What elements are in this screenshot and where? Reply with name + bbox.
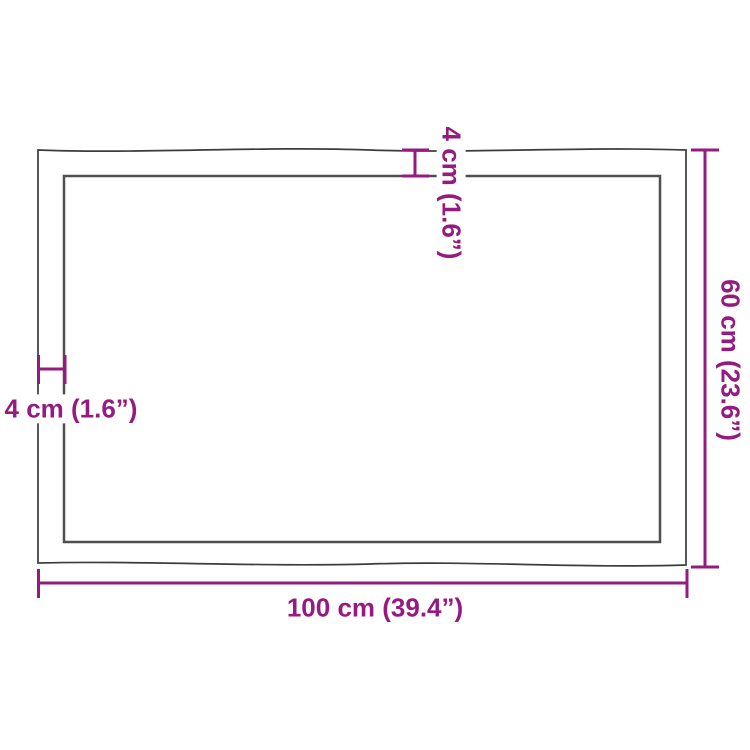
- top-thickness-label: 4 cm (1.6”): [436, 124, 465, 263]
- dimension-diagram: 4 cm (1.6”) 4 cm (1.6”) 60 cm (23.6”) 10…: [0, 0, 750, 750]
- length-dimension-label: 100 cm (39.4”): [284, 593, 466, 622]
- tabletop-drawing: [0, 0, 750, 750]
- left-thickness-label: 4 cm (1.6”): [2, 394, 141, 423]
- tabletop-outer-edge: [38, 149, 686, 566]
- width-dimension-label: 60 cm (23.6”): [715, 276, 744, 444]
